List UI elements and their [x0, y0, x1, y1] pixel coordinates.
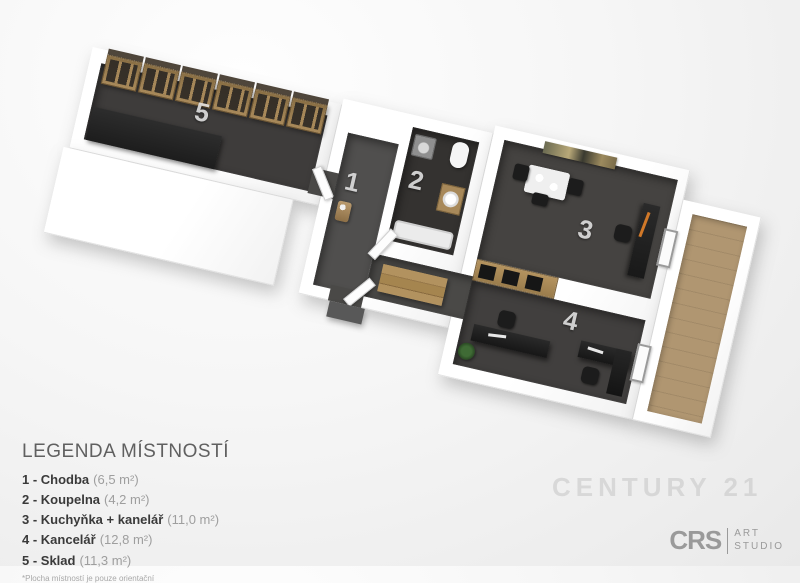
- crs-art-studio-logo: CRS ART STUDIO: [669, 525, 784, 556]
- legend: LEGENDA MÍSTNOSTÍ 1 - Chodba(6,5 m²) 2 -…: [22, 441, 229, 583]
- legend-item-label: 4 - Kancelář: [22, 532, 96, 547]
- century21-watermark: CENTURY 21: [552, 472, 762, 503]
- logo-studio-line: STUDIO: [734, 541, 784, 554]
- legend-item-area: (11,3 m²): [79, 553, 131, 568]
- legend-item-4: 4 - Kancelář(12,8 m²): [22, 530, 229, 550]
- scene: CENTURY 21 5 1: [0, 0, 800, 566]
- floorplan-render: 5 1 2 3: [24, 16, 766, 473]
- logo-art-line: ART: [734, 528, 784, 541]
- legend-item-label: 3 - Kuchyňka + kanelář: [22, 512, 163, 527]
- legend-item-area: (11,0 m²): [167, 512, 219, 527]
- legend-item-5: 5 - Sklad(11,3 m²): [22, 551, 229, 571]
- legend-item-label: 2 - Koupelna: [22, 492, 100, 507]
- logo-studio-text: ART STUDIO: [734, 528, 784, 553]
- legend-items: 1 - Chodba(6,5 m²) 2 - Koupelna(4,2 m²) …: [22, 470, 229, 571]
- legend-item-area: (6,5 m²): [93, 472, 139, 487]
- legend-item-area: (4,2 m²): [104, 492, 150, 507]
- legend-item-3: 3 - Kuchyňka + kanelář(11,0 m²): [22, 510, 229, 530]
- legend-title: LEGENDA MÍSTNOSTÍ: [22, 441, 229, 463]
- legend-item-label: 1 - Chodba: [22, 472, 89, 487]
- legend-footnote: *Plocha místností je pouze orientační: [22, 574, 229, 583]
- legend-item-area: (12,8 m²): [100, 532, 153, 547]
- legend-item-label: 5 - Sklad: [22, 553, 75, 568]
- legend-item-2: 2 - Koupelna(4,2 m²): [22, 490, 229, 510]
- legend-item-1: 1 - Chodba(6,5 m²): [22, 470, 229, 490]
- logo-divider: [727, 528, 728, 554]
- crs-logo-text: CRS: [669, 525, 721, 556]
